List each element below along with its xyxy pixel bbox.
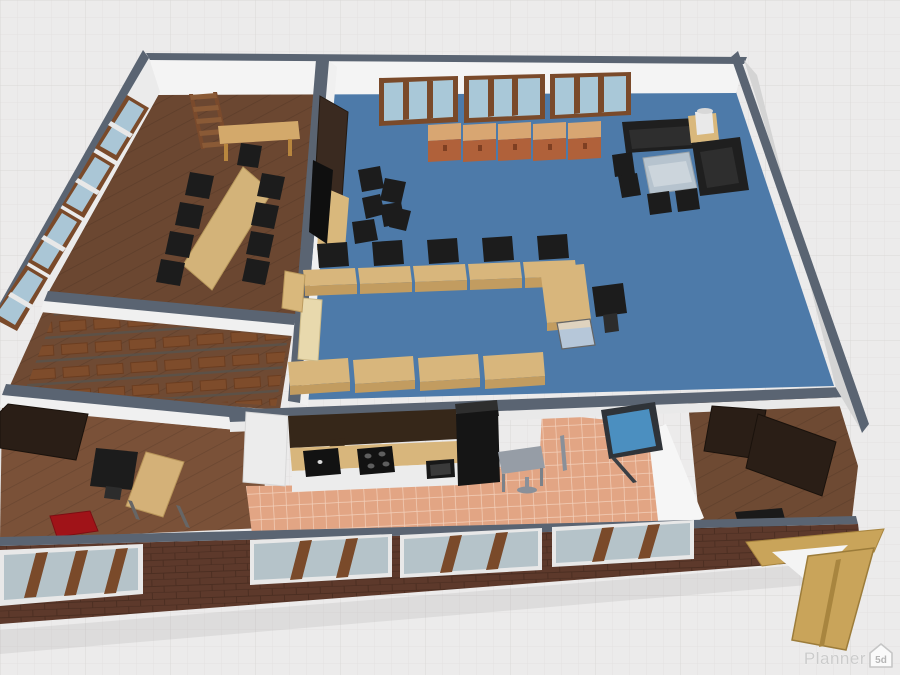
meeting-chair-r1 [257,173,285,200]
meeting-chair-head [237,143,262,168]
easel-board [282,271,305,312]
meeting-chair-l1 [185,172,214,199]
back-window-2-mullion-b [512,78,518,116]
cooktop-burner-1 [365,454,372,459]
planner-3d-viewport[interactable]: Planner 5d [0,0,900,675]
meeting-chair-r2 [251,202,279,229]
cooktop-burner-2 [379,452,386,457]
kitchen-tall-cabinet [243,412,288,486]
cabinet-1-handle [443,145,447,151]
desk-row-top-2-front [360,282,412,294]
kitchen-microwave-door [430,463,451,476]
cooktop-burner-3 [368,464,375,469]
scene-shapes [0,0,900,675]
metal-table-leg-a [502,474,505,492]
office-chair-seat [90,448,138,490]
watermark-text: Planner [804,649,866,668]
desk-chair-2 [372,240,404,266]
lounge-stool-2 [618,173,641,198]
desk-row-bottom-4 [483,352,545,380]
desk-row-top-4 [468,262,522,280]
cabinet-5-handle [583,143,587,149]
console-table-leg-a [224,144,228,161]
water-cooler-top [697,108,713,114]
scene-svg: Planner 5d [0,0,900,675]
back-window-1-glass [384,80,453,121]
front-window-2-glass [254,537,388,580]
back-window-3-glass [555,76,626,115]
cabinet-4-top [533,122,566,140]
cabinet-2-top [463,123,496,141]
back-window-2-glass [469,78,540,118]
back-window-3-mullion-b [598,76,604,113]
meeting-chair-l2 [175,202,204,229]
lounge-sofa-1-seat [629,126,692,149]
desk-chair-1 [317,242,349,268]
interior-glass-door-glass [607,409,656,454]
desk-chair-4 [482,236,514,262]
desk-row-bottom-2 [353,356,415,384]
cabinet-1-top [428,123,461,141]
wire-side-table [557,319,595,349]
cabinet-2-handle [478,145,482,151]
fridge-body [456,410,500,486]
desk-row-bottom-1 [288,358,350,386]
back-window-1-mullion-b [427,81,433,119]
lounge-stool-3 [647,191,672,215]
cabinet-4-handle [548,144,552,150]
stacked-chair-6 [352,219,378,244]
meeting-chair-l4 [156,259,185,286]
desk-row-top-1-front [305,284,357,296]
metal-table-leg-b [540,468,543,486]
watermark-badge-text: 5d [875,655,887,666]
desk-chair-3 [427,238,459,264]
meeting-chair-l3 [165,231,194,258]
desk-row-bottom-3 [418,354,480,382]
meeting-chair-r3 [246,231,274,258]
kitchen-faucet [318,460,323,464]
lounge-sofa-2-seat [700,147,739,188]
stacked-chair-1 [358,166,384,192]
desk-row-top-2 [358,266,412,284]
office-chair-right-seat [592,283,627,317]
meeting-chair-r4 [242,258,270,285]
desk-row-top-4-front [470,278,522,290]
cooktop-burner-4 [383,462,390,467]
lounge-stool-4 [675,188,700,212]
desk-row-top-1 [303,268,357,286]
console-table-leg-b [288,139,292,156]
metal-stool-base [517,487,537,494]
cabinet-3-top [498,122,531,140]
desk-row-top-3-front [415,280,467,292]
kitchen-cooktop [357,446,395,475]
back-window-1-mullion-a [403,82,409,120]
office-chair-right-base [603,313,619,333]
cabinet-5-top [568,121,601,139]
lounge-stool-1 [612,152,635,177]
back-window-2-mullion-a [488,79,494,117]
back-window-3-mullion-a [574,77,580,114]
desk-row-top-3 [413,264,467,282]
desk-chair-5 [537,234,569,260]
corner-desk-top [540,264,591,323]
cabinet-3-handle [513,144,517,150]
office-chair-base [104,486,122,500]
